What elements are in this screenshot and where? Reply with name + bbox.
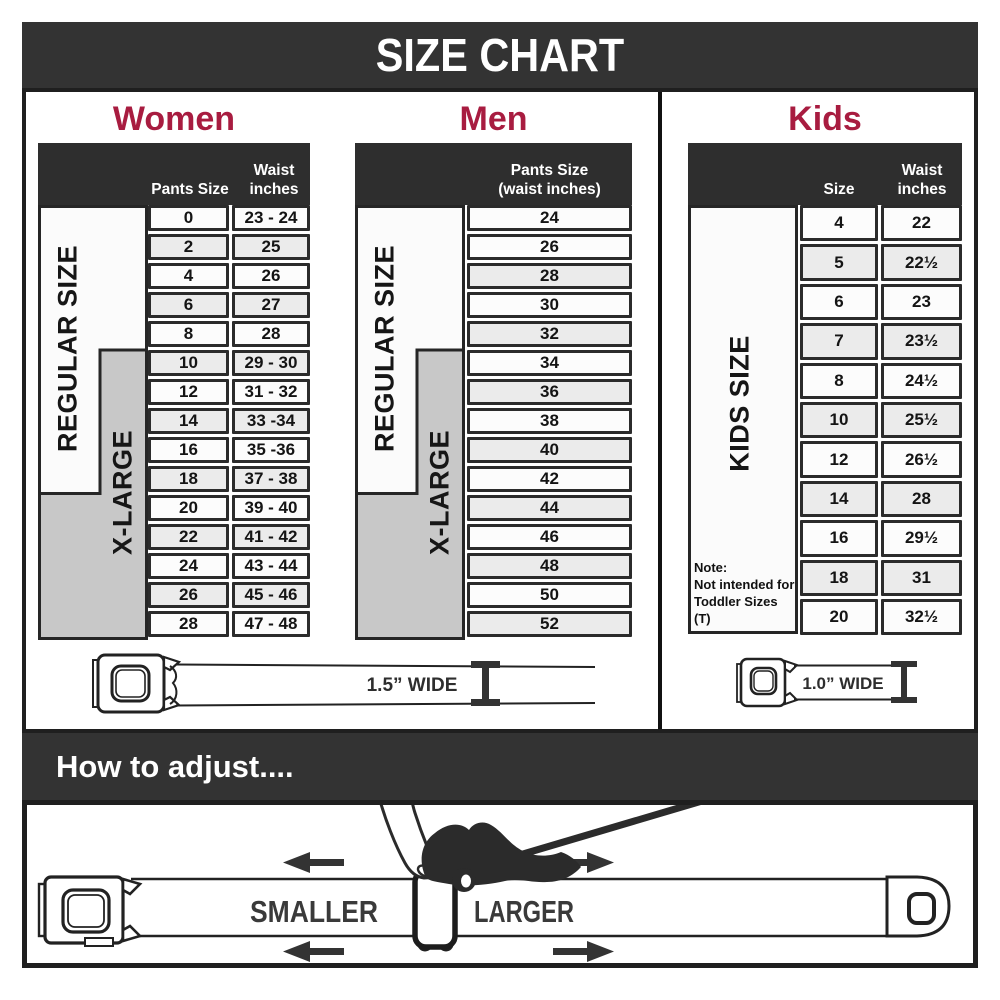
table-cell: 20 [800, 599, 878, 635]
page-title: SIZE CHART [376, 28, 624, 82]
strap-tab-top [123, 879, 140, 894]
measure-bar [482, 664, 489, 703]
table-cell: 8 [800, 363, 878, 399]
adult-width-label: 1.5” WIDE [367, 675, 458, 696]
kids-size-label: KIDS SIZE [725, 194, 756, 614]
men-table: Pants Size (waist inches) REGULAR SIZE X… [355, 143, 632, 640]
table-cell: 35 -36 [232, 437, 310, 463]
table-cell: 6 [148, 292, 229, 318]
table-cell: 40 [467, 437, 632, 463]
strap-tab-bottom [123, 926, 140, 941]
table-cell: 24½ [881, 363, 962, 399]
men-xlarge-label: X-LARGE [425, 343, 456, 643]
belt-tip-slot [909, 894, 934, 923]
women-col2-header: Waist inches [246, 162, 302, 199]
section-divider [658, 92, 662, 729]
table-cell: 12 [800, 441, 878, 477]
table-cell: 33 -34 [232, 408, 310, 434]
table-cell: 23 [881, 284, 962, 320]
measure-bar [901, 664, 907, 700]
men-rows: 242628303234363840424446485052 [467, 205, 632, 637]
table-cell: 25 [232, 234, 310, 260]
kids-rows: 422522½623723½824½1025½1226½14281629½183… [800, 205, 962, 635]
table-cell: 10 [148, 350, 229, 376]
table-cell: 12 [148, 379, 229, 405]
kids-width-label: 1.0” WIDE [802, 674, 883, 693]
table-cell: 18 [148, 466, 229, 492]
table-cell: 20 [148, 495, 229, 521]
table-cell: 47 - 48 [232, 611, 310, 637]
table-cell: 44 [467, 495, 632, 521]
table-cell: 46 [467, 524, 632, 550]
kids-section-title: Kids [688, 100, 962, 140]
table-cell: 24 [148, 553, 229, 579]
table-cell: 26 [467, 234, 632, 260]
table-cell: 7 [800, 323, 878, 359]
kids-col2-header: Waist inches [894, 162, 950, 199]
adjust-title: How to adjust.... [56, 749, 294, 785]
arrow-left-bottom-icon [283, 941, 344, 962]
table-cell: 32½ [881, 599, 962, 635]
table-cell: 14 [148, 408, 229, 434]
women-xlarge-label: X-LARGE [108, 343, 139, 643]
adjust-illustration: SMALLER LARGER [27, 805, 973, 963]
table-cell: 37 - 38 [232, 466, 310, 492]
adult-belt-icon: 1.5” WIDE [90, 648, 640, 718]
hand-silhouette [422, 823, 581, 886]
men-section-title: Men [355, 100, 632, 140]
table-cell: 42 [467, 466, 632, 492]
women-regular-size-label: REGULAR SIZE [53, 199, 84, 499]
size-tables-panel: Women Men Kids Pants Size Waist inches R… [22, 88, 978, 733]
table-cell: 48 [467, 553, 632, 579]
table-cell: 26 [148, 582, 229, 608]
table-cell: 18 [800, 560, 878, 596]
table-cell: 38 [467, 408, 632, 434]
table-cell: 10 [800, 402, 878, 438]
smaller-label: SMALLER [250, 894, 378, 929]
table-cell: 14 [800, 481, 878, 517]
adjust-banner: How to adjust.... [22, 733, 978, 800]
table-cell: 28 [467, 263, 632, 289]
table-cell: 50 [467, 582, 632, 608]
table-cell: 31 [881, 560, 962, 596]
table-cell: 23 - 24 [232, 205, 310, 231]
table-cell: 24 [467, 205, 632, 231]
width-measure-icon [471, 661, 500, 706]
width-measure-icon [891, 661, 917, 703]
women-table: Pants Size Waist inches REGULAR SIZE X-L… [38, 143, 310, 640]
women-rows: 023 - 242254266278281029 - 301231 - 3214… [148, 205, 310, 637]
arrow-right-bottom-icon [553, 941, 614, 962]
women-col1-header: Pants Size [148, 181, 232, 199]
buckle-inner-line [754, 671, 773, 691]
table-cell: 4 [800, 205, 878, 241]
table-cell: 26 [232, 263, 310, 289]
table-cell: 34 [467, 350, 632, 376]
table-cell: 6 [800, 284, 878, 320]
table-cell: 36 [467, 379, 632, 405]
kids-col1-header: Size [800, 181, 878, 199]
table-cell: 52 [467, 611, 632, 637]
table-cell: 32 [467, 321, 632, 347]
table-cell: 22 [881, 205, 962, 241]
table-cell: 8 [148, 321, 229, 347]
measure-cap-bottom [471, 699, 500, 706]
kids-table: Size Waist inches Note: Not intended for… [688, 143, 962, 637]
buckle-inner-line [68, 895, 104, 927]
table-cell: 31 - 32 [232, 379, 310, 405]
arrow-left-top-icon [283, 852, 344, 873]
table-cell: 23½ [881, 323, 962, 359]
table-cell: 16 [800, 520, 878, 556]
table-cell: 4 [148, 263, 229, 289]
strap-top-line [176, 665, 595, 668]
thumbnail [461, 875, 471, 888]
men-regular-size-label: REGULAR SIZE [370, 199, 401, 499]
table-cell: 41 - 42 [232, 524, 310, 550]
measure-cap-bottom [891, 697, 917, 703]
table-cell: 28 [881, 481, 962, 517]
table-cell: 22 [148, 524, 229, 550]
table-cell: 27 [232, 292, 310, 318]
table-cell: 16 [148, 437, 229, 463]
kids-belt-icon: 1.0” WIDE [728, 650, 928, 710]
table-cell: 26½ [881, 441, 962, 477]
title-banner: SIZE CHART [22, 22, 978, 88]
men-table-header: Pants Size (waist inches) [355, 143, 632, 205]
table-cell: 25½ [881, 402, 962, 438]
table-cell: 29½ [881, 520, 962, 556]
buckle-foot [85, 938, 113, 946]
table-cell: 2 [148, 234, 229, 260]
table-cell: 28 [232, 321, 310, 347]
table-cell: 28 [148, 611, 229, 637]
table-cell: 45 - 46 [232, 582, 310, 608]
buckle-inner-line [116, 670, 145, 697]
men-col-header: Pants Size (waist inches) [467, 162, 632, 199]
strap-bottom-line [176, 703, 595, 706]
women-table-header: Pants Size Waist inches [38, 143, 310, 205]
table-cell: 39 - 40 [232, 495, 310, 521]
table-cell: 30 [467, 292, 632, 318]
women-section-title: Women [38, 100, 310, 140]
adjust-illustration-panel: SMALLER LARGER [22, 800, 978, 968]
table-cell: 5 [800, 244, 878, 280]
larger-label: LARGER [474, 894, 574, 929]
table-cell: 0 [148, 205, 229, 231]
table-cell: 43 - 44 [232, 553, 310, 579]
table-cell: 22½ [881, 244, 962, 280]
table-cell: 29 - 30 [232, 350, 310, 376]
